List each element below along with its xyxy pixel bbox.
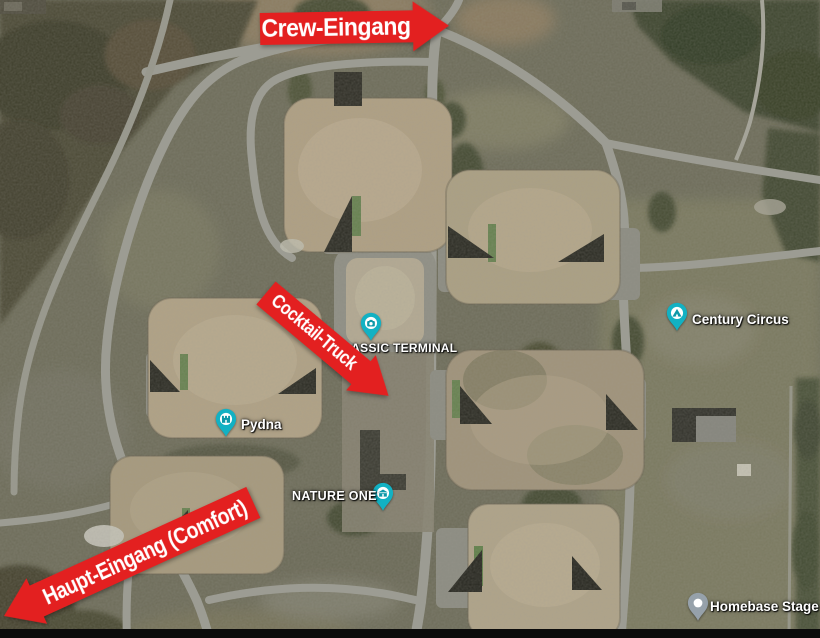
century-circus-pin-icon[interactable] bbox=[666, 302, 688, 332]
arrow-body: Crew-Eingang bbox=[260, 10, 414, 45]
poi-label-homebase-stage[interactable]: Homebase Stage bbox=[710, 599, 819, 614]
poi-label-century-circus[interactable]: Century Circus bbox=[692, 312, 789, 327]
poi-label-pydna[interactable]: Pydna bbox=[241, 417, 282, 432]
arrow-head-right-icon bbox=[413, 1, 450, 52]
annotation-arrow-crew-eingang: Crew-Eingang bbox=[260, 1, 450, 54]
homebase-stage-pin-icon[interactable] bbox=[687, 592, 709, 622]
bottom-letterbox-bar bbox=[0, 629, 820, 638]
poi-label-nature-one[interactable]: NATURE ONE bbox=[292, 489, 377, 503]
pydna-pin-icon[interactable] bbox=[215, 408, 237, 438]
annotation-label-crew-eingang: Crew-Eingang bbox=[262, 12, 412, 44]
annotated-satellite-map: CLASSIC TERMINAL Century Circus Pydna NA… bbox=[0, 0, 820, 638]
classic-terminal-pin-icon[interactable] bbox=[360, 312, 382, 342]
